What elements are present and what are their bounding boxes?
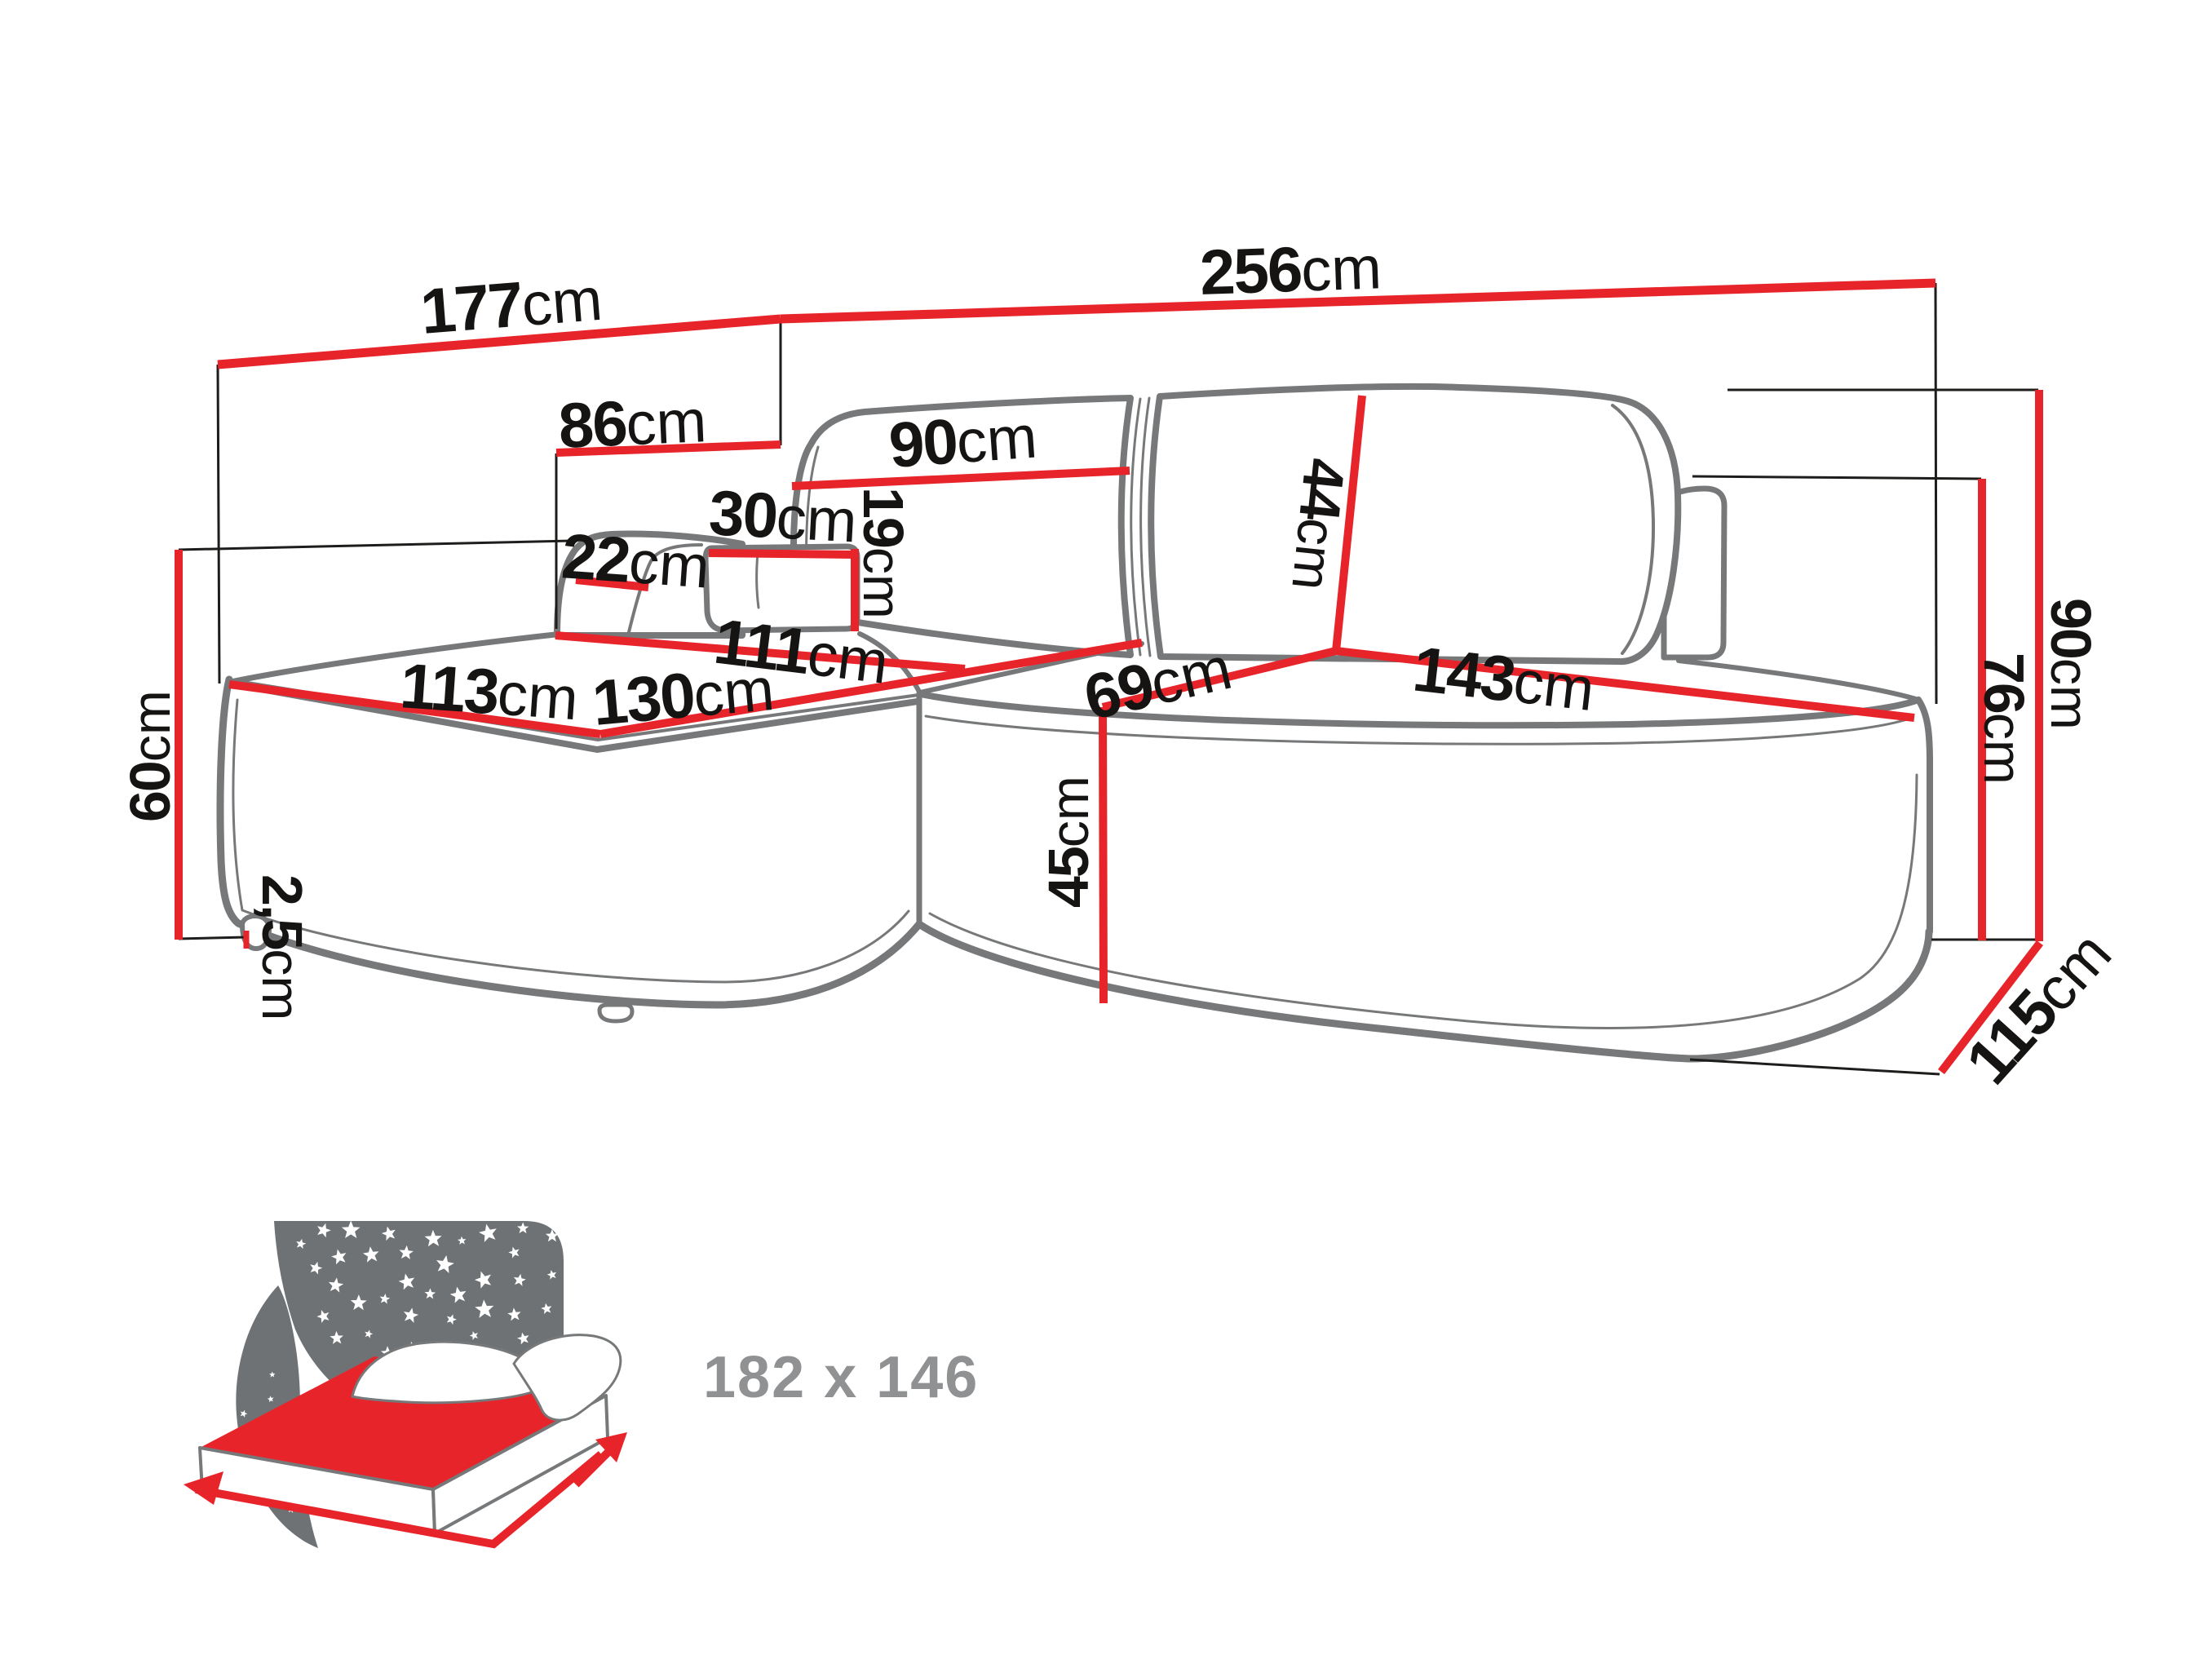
svg-text:19cm: 19cm <box>852 487 915 619</box>
svg-text:90cm: 90cm <box>887 400 1039 481</box>
svg-text:76cm: 76cm <box>1972 653 2036 785</box>
svg-text:60cm: 60cm <box>118 690 182 822</box>
svg-text:30cm: 30cm <box>707 476 859 555</box>
svg-text:90cm: 90cm <box>2039 598 2103 730</box>
svg-text:256cm: 256cm <box>1199 230 1383 308</box>
svg-text:2,5cm: 2,5cm <box>250 874 314 1020</box>
svg-text:22cm: 22cm <box>560 520 712 601</box>
svg-text:86cm: 86cm <box>557 383 708 462</box>
svg-text:45cm: 45cm <box>1037 776 1100 908</box>
svg-text:177cm: 177cm <box>418 262 604 347</box>
svg-text:182 x 146: 182 x 146 <box>703 1345 979 1410</box>
